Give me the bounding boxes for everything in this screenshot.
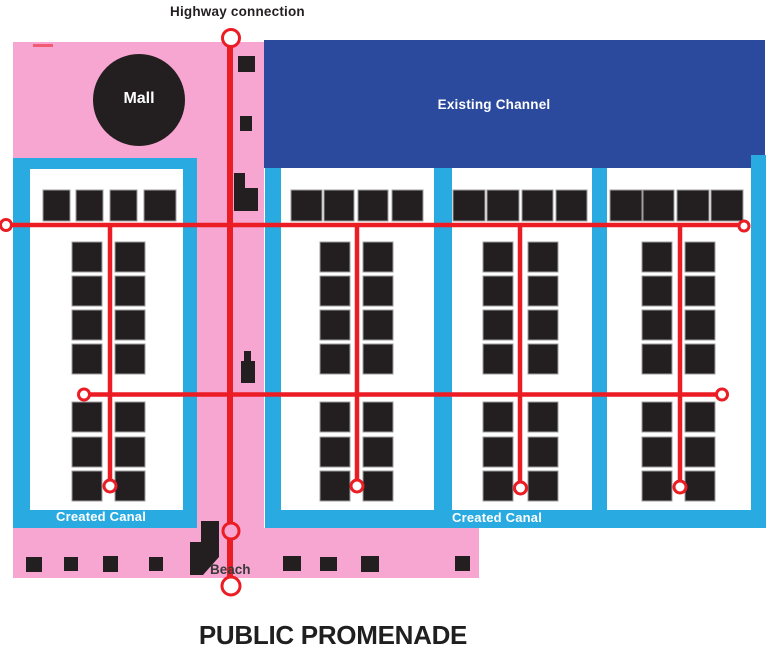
building-block: [528, 437, 558, 467]
beach-structure: [26, 557, 42, 572]
promenade-structure: [240, 116, 252, 131]
building-block: [320, 344, 350, 374]
building-block: [483, 471, 513, 501]
canal-strip-3: [592, 168, 607, 528]
building-block: [453, 190, 485, 221]
building-block: [483, 310, 513, 340]
building-block: [528, 276, 558, 306]
existing-channel-label: Existing Channel: [364, 97, 624, 113]
building-block: [363, 402, 393, 432]
building-block: [320, 471, 350, 501]
building-block: [115, 276, 145, 306]
building-block: [610, 190, 642, 221]
building-block: [483, 276, 513, 306]
building-block: [642, 402, 672, 432]
promenade-structure: [238, 56, 255, 72]
building-block: [528, 344, 558, 374]
building-block: [685, 402, 715, 432]
building-block: [642, 276, 672, 306]
highway-connection-label: Highway connection: [170, 4, 305, 20]
building-block: [487, 190, 519, 221]
building-block: [43, 190, 70, 221]
building-block: [115, 471, 145, 501]
building-block: [528, 471, 558, 501]
building-block: [320, 242, 350, 272]
building-block: [115, 242, 145, 272]
building-block: [115, 344, 145, 374]
beach-structure: [320, 557, 337, 571]
building-block: [483, 344, 513, 374]
building-block: [711, 190, 743, 221]
building-block: [363, 344, 393, 374]
road-node: [515, 482, 527, 494]
site-plan-diagram: Highway connection Mall Existing Channel…: [0, 0, 768, 662]
beach-structure: [103, 556, 118, 572]
building-block: [483, 242, 513, 272]
building-block: [363, 437, 393, 467]
building-block: [642, 242, 672, 272]
building-block: [642, 471, 672, 501]
promenade-structure: [244, 351, 251, 362]
building-block: [291, 190, 322, 221]
road-node: [223, 30, 240, 47]
building-block: [685, 276, 715, 306]
building-block: [72, 276, 102, 306]
building-block: [320, 276, 350, 306]
building-block: [528, 402, 558, 432]
building-block: [320, 402, 350, 432]
building-block: [642, 310, 672, 340]
canal-strip-1: [265, 168, 281, 528]
road-node: [351, 480, 363, 492]
building-block: [528, 310, 558, 340]
beach-structure: [64, 557, 78, 571]
building-block: [392, 190, 423, 221]
road-node: [674, 481, 686, 493]
building-block: [363, 471, 393, 501]
beach-structure: [361, 556, 379, 572]
building-block: [556, 190, 587, 221]
road-node: [79, 389, 90, 400]
page-title: PUBLIC PROMENADE: [183, 621, 483, 651]
beach-structure: [149, 557, 163, 571]
building-block: [76, 190, 103, 221]
building-block: [685, 471, 715, 501]
building-block: [685, 310, 715, 340]
building-block: [320, 437, 350, 467]
building-block: [685, 344, 715, 374]
building-block: [358, 190, 388, 221]
building-block: [522, 190, 553, 221]
road-node: [222, 577, 240, 595]
building-block: [363, 242, 393, 272]
beach-structure: [283, 556, 301, 571]
building-block: [320, 310, 350, 340]
building-block: [363, 276, 393, 306]
road-node: [739, 221, 749, 231]
building-block: [642, 344, 672, 374]
building-block: [643, 190, 674, 221]
canal-strip-2: [434, 168, 452, 528]
building-block: [72, 437, 102, 467]
building-block: [72, 242, 102, 272]
beach-structure: [455, 556, 470, 571]
building-block: [115, 402, 145, 432]
building-block: [677, 190, 709, 221]
building-block: [685, 242, 715, 272]
building-block: [115, 437, 145, 467]
created-canal-west-label: Created Canal: [31, 510, 171, 525]
mall-label: Mall: [93, 90, 185, 108]
canal-strip-4: [751, 155, 766, 528]
building-block: [528, 242, 558, 272]
created-canal-east-label: Created Canal: [452, 511, 542, 526]
building-block: [483, 402, 513, 432]
building-block: [642, 437, 672, 467]
building-block: [144, 190, 176, 221]
corner-mark: [33, 44, 53, 47]
promenade-structure: [241, 361, 255, 383]
road-node: [104, 480, 116, 492]
road-node: [1, 220, 12, 231]
building-block: [110, 190, 137, 221]
beach-label: Beach: [210, 562, 251, 578]
building-block: [72, 310, 102, 340]
building-block: [72, 402, 102, 432]
building-block: [115, 310, 145, 340]
building-block: [72, 344, 102, 374]
promenade-structure: [234, 188, 258, 211]
road-node: [717, 389, 728, 400]
building-block: [72, 471, 102, 501]
building-block: [685, 437, 715, 467]
road-node: [223, 523, 239, 539]
building-block: [483, 437, 513, 467]
building-block: [324, 190, 354, 221]
building-block: [363, 310, 393, 340]
